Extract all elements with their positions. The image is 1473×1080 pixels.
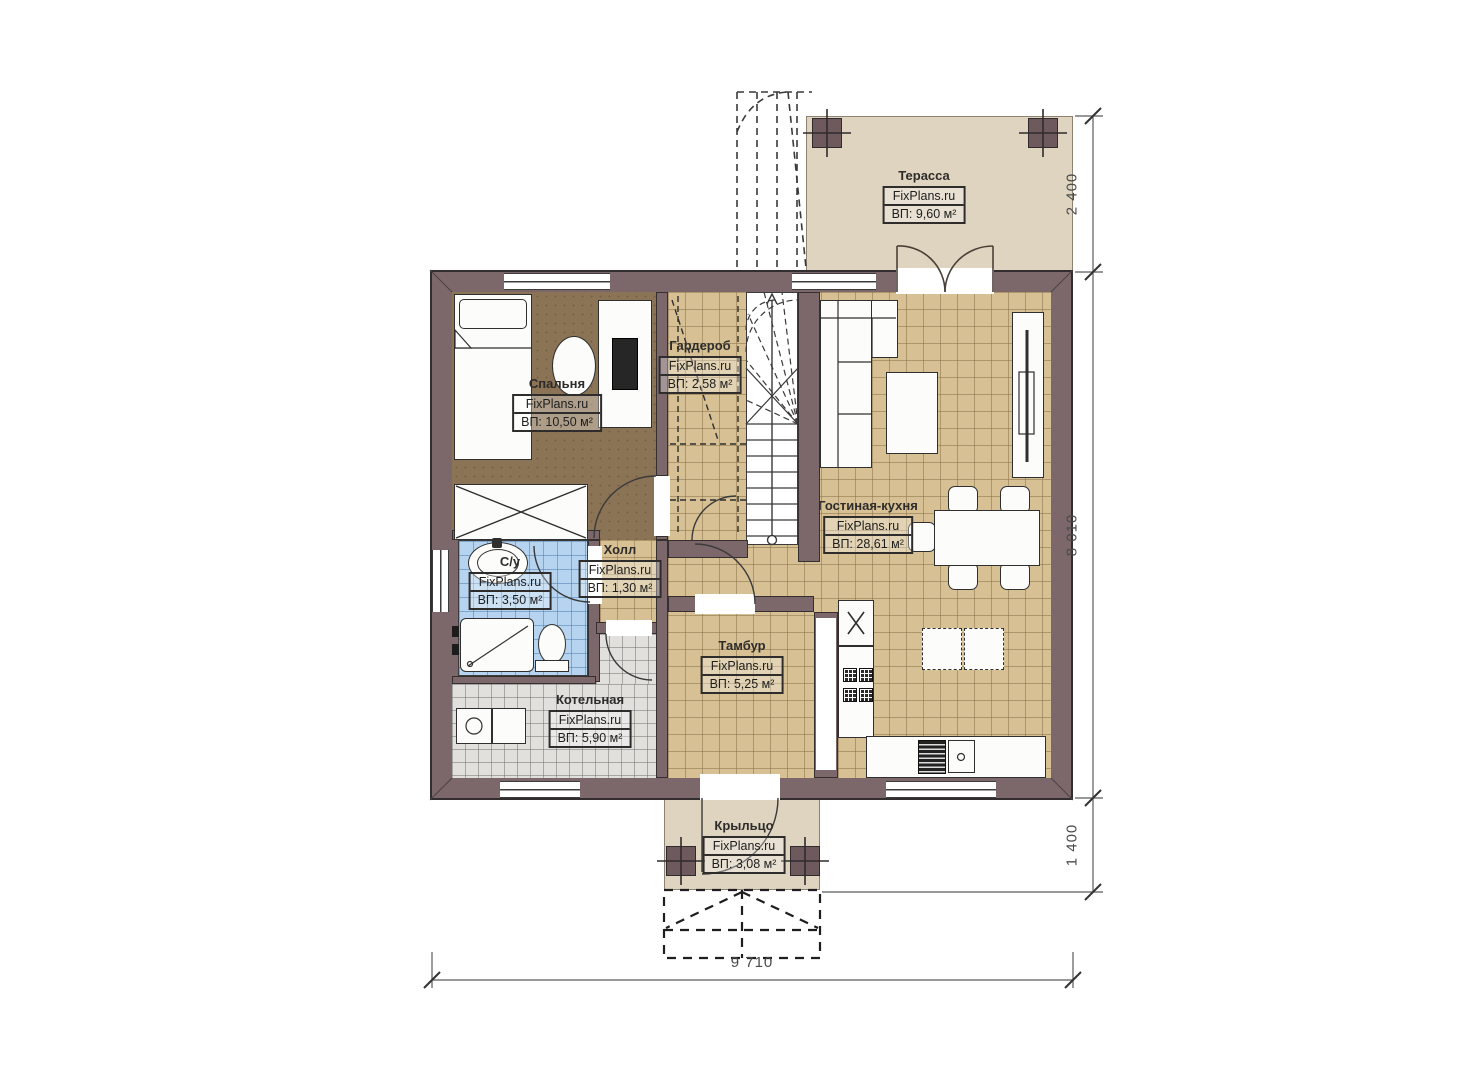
fixplans-watermark: FixPlans.ru ВП: 5,25 м² bbox=[701, 656, 784, 694]
room-name: С/у bbox=[469, 554, 552, 569]
area-row: ВП: 1,30 м² bbox=[581, 580, 660, 596]
room-label-bedroom: Спальня FixPlans.ru ВП: 10,50 м² bbox=[512, 376, 602, 432]
bathroom-tap bbox=[492, 538, 502, 548]
area-row: ВП: 9,60 м² bbox=[885, 206, 964, 222]
area-row: ВП: 5,25 м² bbox=[703, 676, 782, 692]
room-label-vestibule: Тамбур FixPlans.ru ВП: 5,25 м² bbox=[701, 638, 784, 694]
fixplans-watermark: FixPlans.ru ВП: 3,08 м² bbox=[703, 836, 786, 874]
porch-post-left bbox=[666, 846, 696, 876]
fridge bbox=[838, 600, 874, 646]
bedroom-window bbox=[504, 273, 610, 290]
fixplans-watermark: FixPlans.ru ВП: 1,30 м² bbox=[579, 560, 662, 598]
dining-table bbox=[934, 510, 1040, 566]
kitchen-slider-opening bbox=[816, 618, 836, 770]
towel-hook bbox=[452, 626, 459, 637]
room-label-porch: Крыльцо FixPlans.ru ВП: 3,08 м² bbox=[703, 818, 786, 874]
brand-row: FixPlans.ru bbox=[705, 838, 784, 856]
room-label-wardrobe: Гардероб FixPlans.ru ВП: 2,58 м² bbox=[659, 338, 742, 394]
bed-pillow bbox=[459, 299, 527, 329]
room-name: Гостиная-кухня bbox=[818, 498, 918, 513]
living-window-top bbox=[792, 273, 876, 290]
room-name: Тамбур bbox=[701, 638, 784, 653]
shower bbox=[460, 618, 534, 672]
entrance-door-opening bbox=[700, 774, 780, 800]
room-name: Гардероб bbox=[659, 338, 742, 353]
upper-stairs-projection bbox=[737, 92, 812, 270]
area-row: ВП: 10,50 м² bbox=[514, 414, 600, 430]
dining-chair bbox=[1000, 562, 1030, 590]
room-label-bathroom: С/у FixPlans.ru ВП: 3,50 м² bbox=[469, 554, 552, 610]
room-label-hall: Холл FixPlans.ru ВП: 1,30 м² bbox=[579, 542, 662, 598]
room-label-terrace: Терасса FixPlans.ru ВП: 9,60 м² bbox=[883, 168, 966, 224]
vestibule-door-opening bbox=[695, 594, 755, 614]
bedroom-closet bbox=[454, 484, 588, 540]
area-row: ВП: 28,61 м² bbox=[825, 536, 911, 552]
stove-burner bbox=[859, 668, 873, 682]
fixplans-watermark: FixPlans.ru ВП: 9,60 м² bbox=[883, 186, 966, 224]
boiler-counter bbox=[492, 708, 526, 744]
room-name: Терасса bbox=[883, 168, 966, 183]
towel-hook bbox=[452, 644, 459, 655]
area-row: ВП: 3,50 м² bbox=[471, 592, 550, 608]
dimension-terrace-depth: 2 400 bbox=[1064, 173, 1081, 216]
wall-stairs-living bbox=[798, 292, 820, 562]
coffee-table bbox=[886, 372, 938, 454]
toilet-tank bbox=[535, 660, 569, 672]
brand-row: FixPlans.ru bbox=[825, 518, 911, 536]
boiler-window bbox=[500, 781, 580, 798]
sofa bbox=[820, 300, 872, 468]
room-label-living-kitchen: Гостиная-кухня FixPlans.ru ВП: 28,61 м² bbox=[818, 498, 918, 554]
kitchen-sink bbox=[948, 740, 975, 773]
brand-row: FixPlans.ru bbox=[581, 562, 660, 580]
room-label-boiler-room: Котельная FixPlans.ru ВП: 5,90 м² bbox=[549, 692, 632, 748]
terrace-post-right bbox=[1028, 118, 1058, 148]
tv-stand bbox=[1012, 312, 1044, 478]
kitchen-window bbox=[886, 781, 996, 798]
kitchen-island bbox=[964, 628, 1004, 670]
fixplans-watermark: FixPlans.ru ВП: 10,50 м² bbox=[512, 394, 602, 432]
brand-row: FixPlans.ru bbox=[471, 574, 550, 592]
stairwell bbox=[746, 292, 798, 545]
room-name: Крыльцо bbox=[703, 818, 786, 833]
stove-burner bbox=[843, 688, 857, 702]
floor-plan: 2 400 8 010 1 400 9 710 Терасса FixPlans… bbox=[0, 0, 1473, 1080]
room-name: Холл bbox=[579, 542, 662, 557]
terrace-post-left bbox=[812, 118, 842, 148]
dimension-house-depth: 8 010 bbox=[1064, 514, 1081, 557]
brand-row: FixPlans.ru bbox=[885, 188, 964, 206]
porch-steps bbox=[664, 890, 820, 958]
wall-under-wardrobe bbox=[668, 540, 748, 558]
dimension-house-width: 9 710 bbox=[731, 954, 774, 971]
fixplans-watermark: FixPlans.ru ВП: 3,50 м² bbox=[469, 572, 552, 610]
fixplans-watermark: FixPlans.ru ВП: 5,90 м² bbox=[549, 710, 632, 748]
kitchen-island bbox=[922, 628, 962, 670]
room-name: Спальня bbox=[512, 376, 602, 391]
bathroom-window bbox=[432, 550, 449, 612]
brand-row: FixPlans.ru bbox=[661, 358, 740, 376]
stove-burner bbox=[859, 688, 873, 702]
boiler-unit bbox=[456, 708, 492, 744]
boiler-door-opening bbox=[606, 620, 652, 636]
stove-burner bbox=[843, 668, 857, 682]
porch-post-right bbox=[790, 846, 820, 876]
terrace-door-opening bbox=[896, 268, 994, 294]
boiler-floor-upper bbox=[596, 634, 656, 684]
fixplans-watermark: FixPlans.ru ВП: 28,61 м² bbox=[823, 516, 913, 554]
area-row: ВП: 3,08 м² bbox=[705, 856, 784, 872]
brand-row: FixPlans.ru bbox=[514, 396, 600, 414]
brand-row: FixPlans.ru bbox=[703, 658, 782, 676]
fixplans-watermark: FixPlans.ru ВП: 2,58 м² bbox=[659, 356, 742, 394]
toilet-bowl bbox=[538, 624, 566, 664]
wall-bathroom-bottom bbox=[452, 676, 596, 684]
room-name: Котельная bbox=[549, 692, 632, 707]
area-row: ВП: 2,58 м² bbox=[661, 376, 740, 392]
bedroom-door-opening bbox=[654, 476, 670, 536]
brand-row: FixPlans.ru bbox=[551, 712, 630, 730]
drying-rack bbox=[918, 740, 946, 774]
dimension-porch-depth: 1 400 bbox=[1064, 824, 1081, 867]
monitor bbox=[612, 338, 638, 390]
area-row: ВП: 5,90 м² bbox=[551, 730, 630, 746]
dining-chair bbox=[948, 562, 978, 590]
